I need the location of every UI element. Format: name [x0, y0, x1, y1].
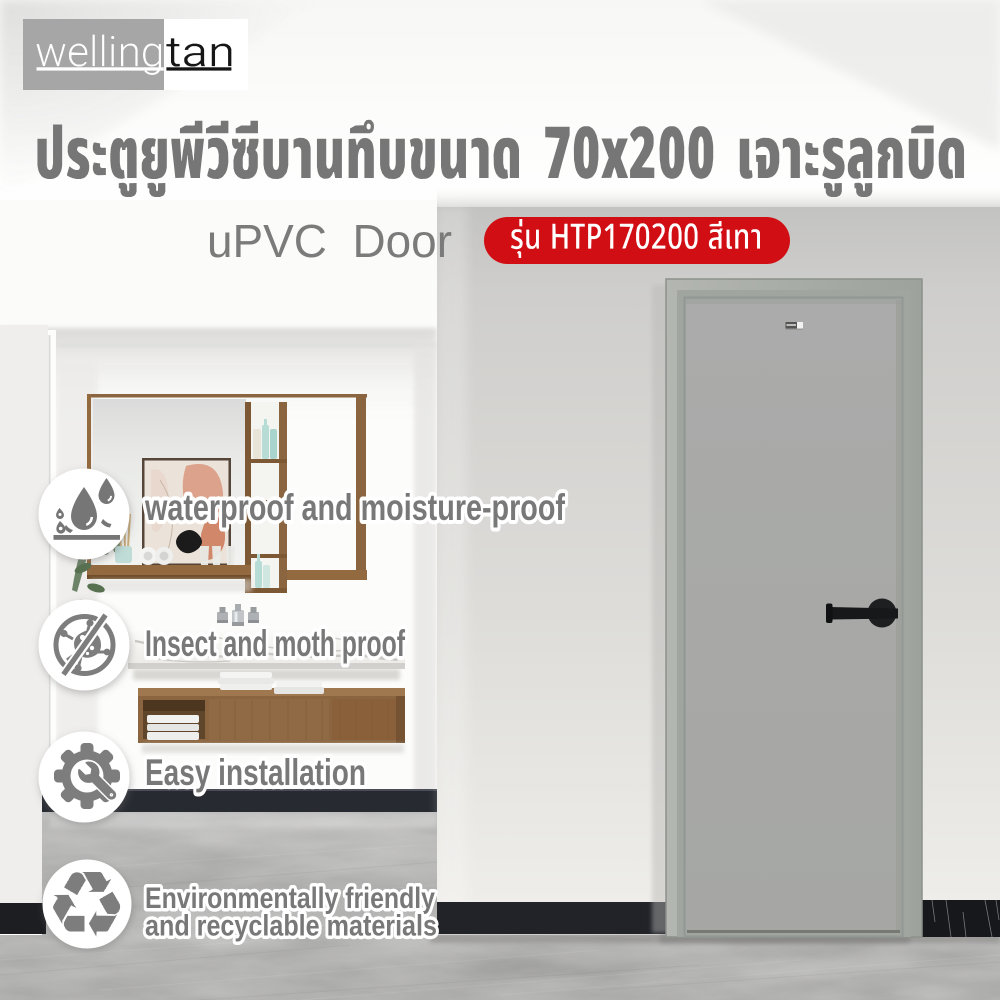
svg-text:uPVC Door: uPVC Door	[207, 215, 452, 267]
svg-text:waterproof and moisture-proof: waterproof and moisture-proof	[144, 487, 565, 528]
svg-text:Easy installation: Easy installation	[145, 752, 366, 793]
svg-text:Insect and moth proof: Insect and moth proof	[145, 623, 405, 664]
svg-text:and recyclable materials: and recyclable materials	[145, 910, 437, 943]
